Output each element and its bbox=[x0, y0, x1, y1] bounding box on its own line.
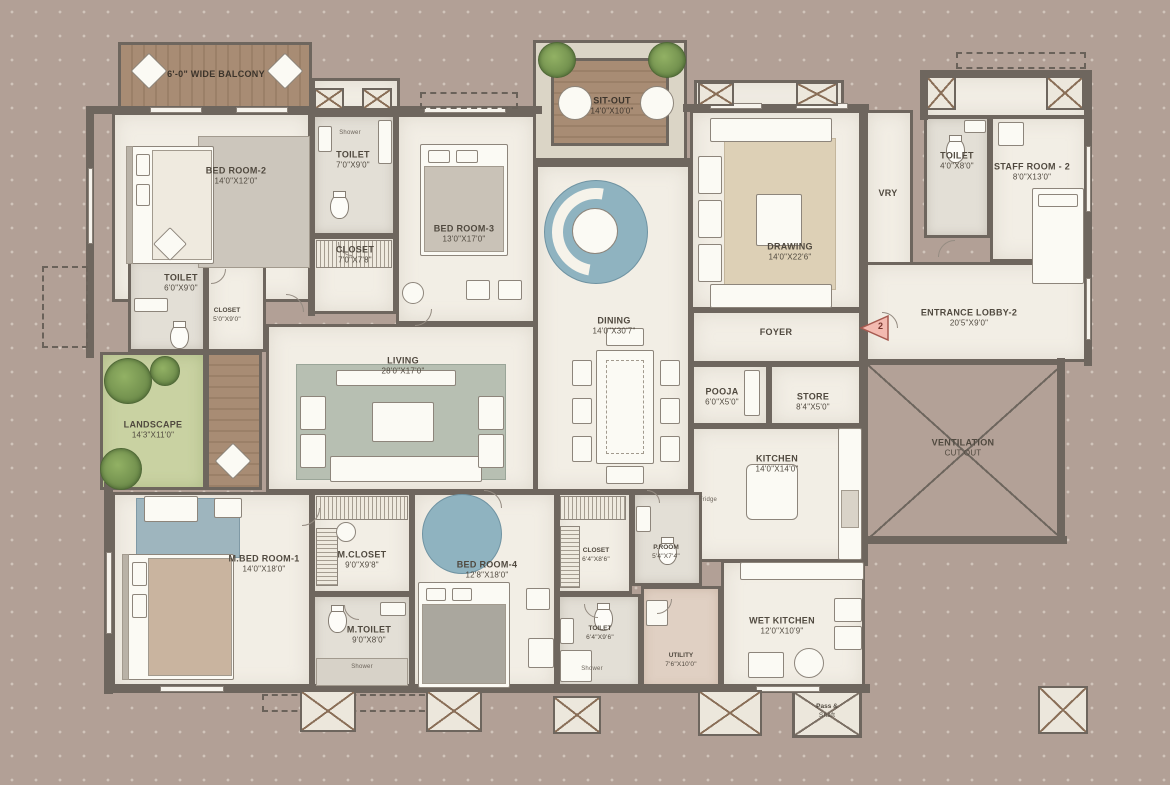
room-label-kitchen: KITCHEN14'0"X14'0" bbox=[756, 453, 799, 476]
room-label-entrance-lobby: ENTRANCE LOBBY-220'5"X9'0" bbox=[921, 307, 1017, 330]
floor-plan: 2 6'-0" WIDE BALCONYBED ROOM-214'0"X12'0… bbox=[0, 0, 1170, 785]
room-label-sit-out: SIT-OUT14'0"X10'0" bbox=[591, 95, 634, 118]
room-label-closet-4: CLOSET6'4"X8'6" bbox=[582, 547, 610, 565]
room-label-ventilation: VENTILATIONCUT OUT bbox=[932, 437, 995, 460]
mini-label: Fridge bbox=[699, 497, 717, 503]
mini-label: Shower bbox=[339, 130, 361, 136]
room-label-utility: UTILITY7'6"X10'0" bbox=[665, 652, 697, 670]
mini-label: Shower bbox=[581, 666, 603, 672]
room-label-closet-left: CLOSET5'0"X9'0" bbox=[213, 307, 241, 325]
room-label-m-bed-room-1: M.BED ROOM-114'0"X18'0" bbox=[228, 553, 299, 576]
room-label-staff-toilet: TOILET4'0"X8'0" bbox=[940, 150, 974, 173]
room-label-dining: DINING14'0"X30'7" bbox=[593, 315, 636, 338]
room-label-pooja: POOJA6'0"X5'0" bbox=[705, 386, 739, 409]
room-label-landscape: LANDSCAPE14'3"X11'0" bbox=[124, 419, 183, 442]
mini-label: Shower bbox=[351, 664, 373, 670]
room-label-bed-room-3: BED ROOM-313'0"X17'0" bbox=[434, 223, 495, 246]
room-label-bed-room-2: BED ROOM-214'0"X12'0" bbox=[206, 165, 267, 188]
room-label-pass-shaft: Pass &Shaft bbox=[816, 703, 838, 721]
room-label-m-closet: M.CLOSET9'0"X9'8" bbox=[338, 549, 387, 572]
room-label-staff-room-2: STAFF ROOM - 28'0"X13'0" bbox=[994, 161, 1070, 184]
room-label-m-toilet: M.TOILET9'0"X8'0" bbox=[347, 624, 391, 647]
labels-layer: 6'-0" WIDE BALCONYBED ROOM-214'0"X12'0"T… bbox=[0, 0, 1170, 785]
room-label-living: LIVING28'0"X17'0" bbox=[382, 355, 425, 378]
room-label-vry: VRY bbox=[878, 187, 897, 199]
room-label-wet-kitchen: WET KITCHEN12'0"X10'9" bbox=[749, 615, 815, 638]
room-label-toilet-bottom: TOILET6'4"X9'6" bbox=[586, 625, 614, 643]
room-label-store: STORE8'4"X5'0" bbox=[796, 391, 830, 414]
room-label-toilet-left: TOILET6'0"X9'0" bbox=[164, 272, 198, 295]
room-label-p-room: P.ROOM5'4"X7'4" bbox=[652, 544, 680, 562]
room-label-drawing: DRAWING14'0"X22'6" bbox=[767, 241, 813, 264]
room-label-foyer: FOYER bbox=[760, 326, 793, 338]
room-label-balcony: 6'-0" WIDE BALCONY bbox=[167, 68, 265, 80]
room-label-toilet-2: TOILET7'0"X9'0" bbox=[336, 149, 370, 172]
room-label-closet-2: CLOSET7'0"X7'8" bbox=[336, 244, 374, 267]
room-label-bed-room-4: BED ROOM-412'8"X18'0" bbox=[457, 559, 518, 582]
